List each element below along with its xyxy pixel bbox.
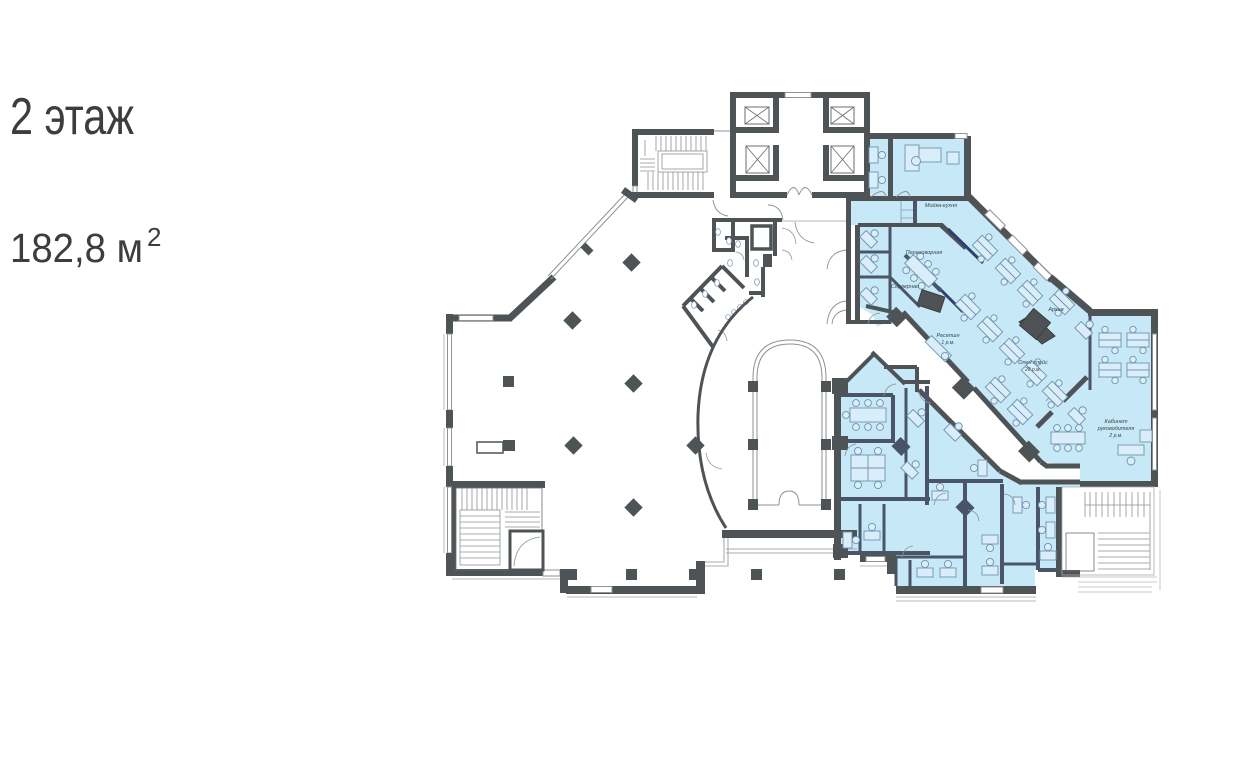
svg-text:28 р.м.: 28 р.м. — [1024, 367, 1041, 373]
svg-text:2 р.м.: 2 р.м. — [1108, 433, 1122, 439]
svg-text:Мойка-кухня: Мойка-кухня — [925, 202, 957, 209]
svg-text:2 этаж: 2 этаж — [10, 88, 134, 146]
svg-text:Ресепшн: Ресепшн — [936, 333, 959, 339]
svg-text:руководителя: руководителя — [1097, 426, 1135, 432]
svg-text:1 р.м.: 1 р.м. — [941, 340, 954, 346]
svg-text:Переговорная: Переговорная — [906, 250, 943, 256]
svg-text:Опен спейс: Опен спейс — [1018, 359, 1048, 366]
svg-text:2: 2 — [147, 222, 161, 252]
svg-text:Кабинет: Кабинет — [1104, 419, 1127, 425]
svg-text:182,8 м: 182,8 м — [10, 225, 143, 271]
svg-text:Серверная: Серверная — [891, 284, 919, 290]
svg-text:Архив: Архив — [1047, 307, 1063, 313]
